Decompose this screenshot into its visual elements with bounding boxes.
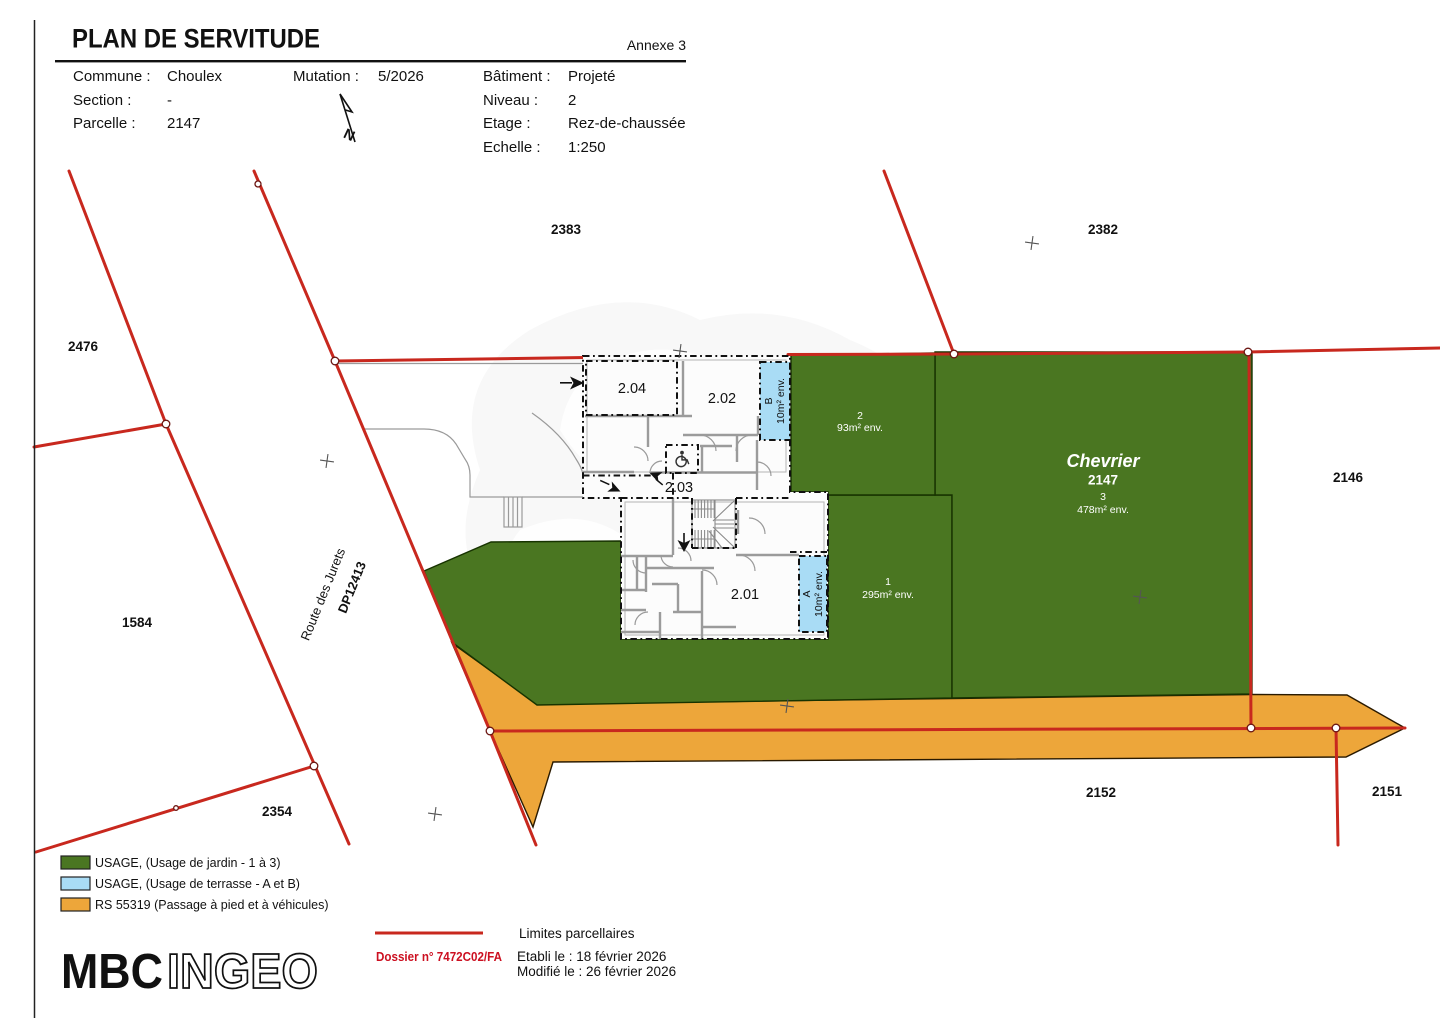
svg-text:2.01: 2.01	[731, 587, 759, 603]
svg-text:2147: 2147	[1088, 473, 1118, 488]
svg-text:2383: 2383	[551, 222, 582, 237]
svg-text:1:250: 1:250	[568, 139, 606, 156]
svg-text:2152: 2152	[1086, 785, 1116, 800]
svg-text:2.03: 2.03	[665, 480, 693, 496]
svg-text:Echelle :: Echelle :	[483, 139, 541, 156]
svg-text:Etabli le : 18 février 2026: Etabli le : 18 février 2026	[517, 949, 666, 964]
svg-text:Annexe 3: Annexe 3	[627, 37, 686, 53]
svg-text:2147: 2147	[167, 115, 200, 132]
svg-text:2476: 2476	[68, 339, 99, 354]
svg-text:5/2026: 5/2026	[378, 68, 424, 85]
svg-text:Choulex: Choulex	[167, 68, 223, 85]
svg-text:-: -	[167, 92, 172, 109]
svg-text:2.04: 2.04	[618, 381, 646, 397]
svg-text:Bâtiment :: Bâtiment :	[483, 68, 551, 85]
svg-text:Chevrier: Chevrier	[1066, 451, 1140, 471]
svg-text:A: A	[801, 590, 813, 597]
svg-text:1: 1	[885, 576, 891, 588]
svg-text:USAGE, (Usage de terrasse - A: USAGE, (Usage de terrasse - A et B)	[95, 877, 300, 891]
svg-text:Mutation :: Mutation :	[293, 68, 359, 85]
svg-text:Parcelle :: Parcelle :	[73, 115, 136, 132]
svg-text:3: 3	[1100, 491, 1106, 503]
svg-text:93m² env.: 93m² env.	[837, 422, 883, 434]
svg-text:Etage :: Etage :	[483, 115, 531, 132]
svg-text:Niveau :: Niveau :	[483, 92, 538, 109]
svg-text:MBC: MBC	[61, 944, 163, 999]
svg-text:2151: 2151	[1372, 784, 1403, 799]
svg-text:USAGE, (Usage de jardin - 1 à: USAGE, (Usage de jardin - 1 à 3)	[95, 856, 281, 870]
svg-text:RS 55319 (Passage à pied et à: RS 55319 (Passage à pied et à véhicules)	[95, 898, 328, 912]
svg-text:PLAN DE SERVITUDE: PLAN DE SERVITUDE	[72, 24, 320, 54]
svg-text:295m² env.: 295m² env.	[862, 589, 914, 601]
svg-text:Limites parcellaires: Limites parcellaires	[519, 926, 635, 941]
svg-text:Projeté: Projeté	[568, 68, 616, 85]
svg-text:Commune :: Commune :	[73, 68, 151, 85]
svg-text:10m² env.: 10m² env.	[775, 378, 787, 424]
svg-text:2: 2	[568, 92, 576, 109]
svg-text:2382: 2382	[1088, 222, 1118, 237]
svg-text:10m² env.: 10m² env.	[813, 571, 825, 617]
svg-text:Modifié le : 26 février 2026: Modifié le : 26 février 2026	[517, 964, 676, 979]
svg-text:1584: 1584	[122, 615, 153, 630]
svg-text:2: 2	[857, 410, 863, 422]
svg-text:B: B	[763, 397, 775, 404]
svg-text:2.02: 2.02	[708, 391, 736, 407]
svg-text:Rez-de-chaussée: Rez-de-chaussée	[568, 115, 686, 132]
svg-text:2146: 2146	[1333, 470, 1364, 485]
svg-text:478m² env.: 478m² env.	[1077, 504, 1129, 516]
svg-text:Dossier n° 7472C02/FA: Dossier n° 7472C02/FA	[376, 950, 502, 964]
svg-text:2354: 2354	[262, 804, 293, 819]
svg-text:Section :: Section :	[73, 92, 131, 109]
svg-text:INGEO: INGEO	[167, 944, 318, 999]
